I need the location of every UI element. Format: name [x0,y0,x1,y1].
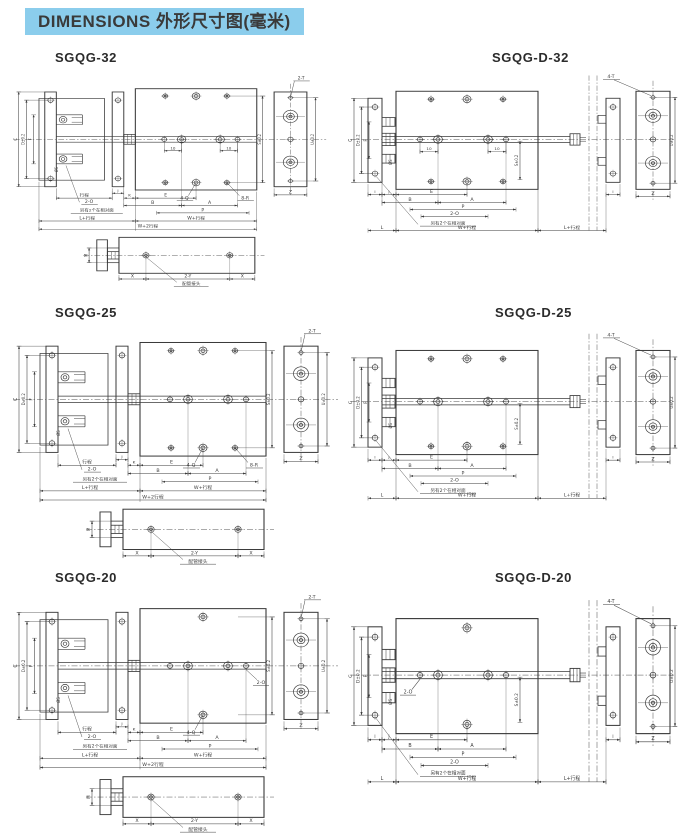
dim-label: A [208,200,211,205]
dim-label: F [29,664,35,667]
dim-label: W+行程 [458,775,476,782]
drawing-title-sgqg-d-32: SGQG-D-32 [492,50,569,65]
sgqg-32-technical-drawing: ØSCD±0.2F1010S±0.24-Q8-RJ行程KEBAP2-O另有2个在… [12,74,330,288]
dim-label: S±0.2 [514,693,520,706]
dim-label: E [170,460,173,466]
dim-label: U±0.2 [311,133,315,144]
dim-label: L+行程 [79,215,95,221]
sgqg-d-20-linework: ØSCD±0.2F2-OS±0.24-TU±0.2ZIJIEBAP2-O另有2个… [348,599,677,784]
dim-label: E [170,727,173,733]
dim-label: B [156,735,159,741]
dim-label: M [84,254,88,257]
dim-label: C [13,664,19,667]
dim-label: X [135,818,139,824]
sgqg-d-20-technical-drawing: ØSCD±0.2F2-OS±0.24-TU±0.2ZIJIEBAP2-O另有2个… [348,596,678,786]
dim-label: Z [299,456,302,462]
dim-label: P [209,476,212,482]
sgqg-32-linework: ØSCD±0.2F1010S±0.24-Q8-RJ行程KEBAP2-O另有2个在… [13,76,326,287]
dim-label: W+2行程 [142,494,164,501]
dim-label: D±0.2 [21,133,25,145]
dim-label: U±0.2 [321,393,326,406]
dim-label: L [381,776,384,782]
drawing-title-sgqg-d-20: SGQG-D-20 [495,570,572,585]
dim-label: 2-O [88,734,97,740]
dim-label: B [408,197,411,203]
section-header: DIMENSIONS 外形尺寸图(毫米) [25,8,304,35]
dim-label: 8-R [241,196,249,201]
sgqg-25-technical-drawing: ØSCD±0.2FS±0.24-Q8-RJ行程KEBAP2-O另有2个在相对面L… [12,326,342,566]
dim-label: 行程 [82,459,92,466]
dim-label: X [249,818,253,824]
dim-label: A [470,463,474,469]
dim-label: X [249,550,252,556]
dim-label: S±0.2 [514,154,519,166]
dim-label: Z [651,191,654,197]
dim-label: A [470,743,474,749]
dim-label: X [241,274,244,279]
dim-label: Z [299,723,302,729]
dim-label: E [430,734,433,740]
dim-label: B [156,468,159,474]
dim-label: 2-Y [191,818,198,824]
dim-label: A [470,197,474,203]
dim-label: ØS [388,423,393,429]
dim-label: 2-O [88,467,97,473]
dim-label: 2-Y [191,550,198,556]
dim-label: J [120,721,122,726]
dim-label: 10 [170,147,176,151]
dim-label: 8-R [250,463,259,469]
dim-label: W+行程 [187,215,205,221]
dim-label: Z [651,736,655,742]
dim-label: 2-O [450,478,459,484]
dim-label: J [120,454,122,459]
dim-label: 另有2个在相对面 [82,476,118,483]
sgqg-20-technical-drawing: ØSCD±0.2FS±0.24-Q2-OJ行程KEBAP2-O另有2个在相对面L… [12,592,342,834]
dim-label: B [408,463,411,469]
dim-label: 4-T [607,599,614,605]
dim-label: P [462,751,465,757]
dim-label: 10 [494,146,500,151]
dim-label: J [116,189,118,193]
dim-label: 10 [426,146,432,151]
dim-label: C [13,138,19,141]
dim-label: F [363,139,368,142]
dim-label: D±0.2 [21,393,26,406]
dim-label: E [430,455,433,461]
dim-label: S±0.2 [266,660,271,672]
dim-label: 行程 [82,726,92,733]
dim-label: 另有2个在相对面 [430,220,466,227]
dim-label: I [374,190,375,194]
dim-label: S±0.2 [266,393,271,405]
dim-label: X [131,274,134,279]
dim-label: P [462,470,465,476]
dim-label: K [133,727,136,732]
dim-label: 2-T [298,76,305,81]
dim-label: C [348,139,354,142]
dim-label: P [462,204,465,210]
dim-label: P [209,744,212,750]
dim-label: 2-T [308,595,315,601]
dim-label: 另有2个在相对面 [83,743,119,750]
dim-label: L+行程 [564,775,580,782]
dim-label: 行程 [80,192,90,198]
dim-label: S±0.2 [258,134,262,145]
dim-label: B [408,743,411,749]
dim-label: M [86,795,91,799]
dim-label: L+行程 [82,484,99,491]
dim-label: 2-Y [184,274,191,279]
dim-label: L [381,225,384,231]
drawing-title-sgqg-32: SGQG-32 [55,50,117,65]
catalog-page: DIMENSIONS 外形尺寸图(毫米) SGQG-32 SGQG-D-32 S… [0,0,680,837]
dim-label: W+行程 [194,484,213,491]
dim-label: I [374,455,375,460]
drawing-title-sgqg-d-25: SGQG-D-25 [495,305,572,320]
dim-label: 4-T [607,333,614,339]
sgqg-d-32-technical-drawing: ØSCD±0.2F1010S±0.24-TU±0.2ZIJIEBAP2-O另有2… [348,72,678,234]
dim-label: P [201,208,204,213]
dim-label: U±0.2 [669,134,674,146]
dim-label: D±0.2 [21,659,26,672]
dim-label: K [133,460,136,465]
dim-label: ØS [56,430,61,436]
dim-label: K [128,194,131,198]
sgqg-d-32-linework: ØSCD±0.2F1010S±0.24-TU±0.2ZIJIEBAP2-O另有2… [348,74,677,232]
dim-label: 10 [226,147,232,151]
dim-label: W+行程 [194,752,213,759]
dim-label: ØS [387,698,394,704]
dim-label: I [612,455,613,460]
dim-label: X [135,550,138,556]
dim-label: 另有2个在相对面 [80,207,114,212]
dim-label: U±0.2 [321,659,326,672]
dim-label: 另有2个在相对面 [430,487,466,494]
dim-label: F [28,138,33,141]
dim-label: B [151,200,154,205]
dim-label: M [86,527,91,531]
dim-label: W+2行程 [138,223,159,229]
sgqg-d-25-technical-drawing: ØSCD±0.2FS±0.24-TU±0.2ZIJIEBAP2-O另有2个在相对… [348,330,678,502]
dim-label: L+行程 [564,492,581,499]
dim-label: 2-O [85,199,94,204]
dim-label: E [430,189,433,195]
dim-label: D±0.2 [355,134,360,146]
dim-label: 配管接头 [188,558,208,565]
dim-label: U±0.2 [669,669,675,683]
dim-label: D±0.2 [356,396,361,409]
sgqg-25-linework: ØSCD±0.2FS±0.24-Q8-RJ行程KEBAP2-O另有2个在相对面L… [13,329,338,565]
dim-label: F [29,398,35,401]
dim-label: 2-T [308,329,315,335]
dim-label: L [381,493,384,499]
dim-label: ØS [54,167,59,172]
dim-label: C [13,398,19,401]
dim-label: W+2行程 [142,761,164,768]
dim-label: S±0.2 [514,418,519,430]
dim-label: Z [651,456,654,462]
drawing-title-sgqg-20: SGQG-20 [55,570,117,585]
dim-label: Z [289,190,292,195]
dim-label: C [348,674,354,678]
dim-label: U±0.2 [669,396,674,409]
dim-label: W+行程 [458,492,477,499]
dim-label: D±0.2 [356,669,362,683]
drawing-title-sgqg-25: SGQG-25 [55,305,117,320]
dim-label: ØS [388,159,393,165]
dim-label: 2-O [257,680,266,686]
dim-label: L+行程 [82,752,99,759]
dim-label: L+行程 [564,224,581,231]
dim-label: I [612,190,613,194]
dim-label: I [374,734,375,739]
dim-label: I [612,734,613,739]
dim-label: 2-O [450,760,459,766]
dim-label: 2-O [404,690,413,696]
sgqg-20-linework: ØSCD±0.2FS±0.24-Q2-OJ行程KEBAP2-O另有2个在相对面L… [13,595,338,833]
dim-label: A [215,468,219,474]
dim-label: E [164,193,167,198]
dim-label: F [363,674,369,677]
dim-label: 2-O [450,211,459,217]
dim-label: 配管接头 [182,281,201,287]
sgqg-d-25-linework: ØSCD±0.2FS±0.24-TU±0.2ZIJIEBAP2-O另有2个在相对… [348,333,677,501]
dim-label: ØS [56,697,61,703]
dim-label: A [215,735,219,741]
dim-label: 配管接头 [188,826,208,833]
dim-label: 4-T [607,74,615,80]
dim-label: C [348,401,354,404]
